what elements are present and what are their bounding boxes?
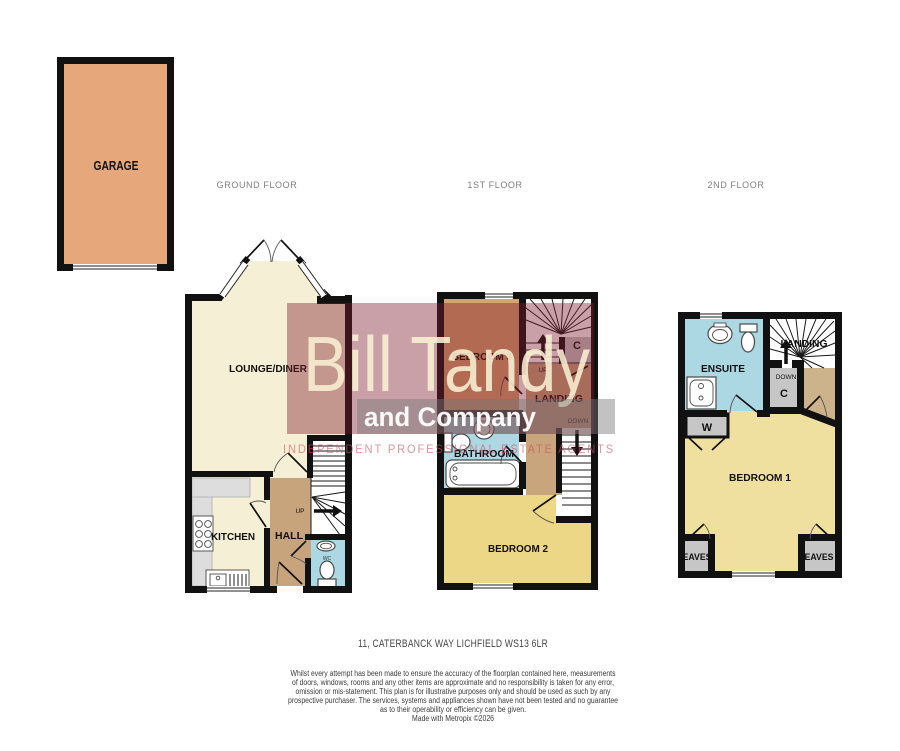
disclaimer-line: as to their operability or efficiency ca…: [380, 705, 526, 714]
agency-watermark: Bill Tandy and Company INDEPENDENT PROFE…: [283, 303, 615, 456]
watermark-tagline: INDEPENDENT PROFESSIONAL ESTATE AGENTS: [283, 442, 615, 456]
floorplan-page: GARAGE GROUND FLOOR 1ST FLOOR 2ND FLOOR: [0, 0, 900, 751]
bedroom2-window: [473, 583, 513, 590]
footer: 11, CATERBANCK WAY LICHFIELD WS13 6LR Wh…: [288, 638, 618, 723]
front-door-opening: [277, 586, 303, 593]
wardrobe-label: W: [702, 422, 713, 434]
first-top-window: [485, 292, 513, 299]
bedroom2-label: BEDROOM 2: [488, 543, 548, 555]
garage-wall-right: [167, 57, 174, 271]
kitchen-label: KITCHEN: [211, 531, 255, 543]
second-landing-label: LANDING: [781, 338, 828, 350]
eaves-right-label: EAVES: [805, 552, 834, 563]
eaves-left-label: EAVES: [683, 552, 712, 563]
garage-wall-bottom-left: [57, 264, 73, 271]
second-cupboard-label: C: [780, 388, 788, 400]
wc-label: WC: [323, 556, 332, 562]
floorplan-canvas: GARAGE GROUND FLOOR 1ST FLOOR 2ND FLOOR: [0, 0, 900, 751]
disclaimer-line: of doors, windows, rooms and any other i…: [292, 678, 614, 687]
wc-basin-icon: [317, 541, 335, 551]
garage-plan: GARAGE: [57, 57, 174, 271]
first-floor-title: 1ST FLOOR: [467, 180, 522, 190]
bathtub-icon: [446, 460, 520, 488]
garage-wall-left: [57, 57, 64, 271]
garage-wall-top: [57, 57, 174, 64]
garage-wall-bottom-right: [157, 264, 174, 271]
second-top-window: [700, 312, 722, 319]
watermark-company: and Company: [364, 402, 536, 432]
bay-french-doors: [246, 240, 299, 262]
garage-door: [73, 264, 157, 271]
bedroom1-window: [732, 571, 775, 578]
disclaimer-line: prospective purchaser. The services, sys…: [288, 696, 618, 705]
property-address: 11, CATERBANCK WAY LICHFIELD WS13 6LR: [358, 638, 548, 650]
kitchen-window: [207, 586, 250, 593]
ground-floor-title: GROUND FLOOR: [217, 180, 298, 190]
ensuite-label: ENSUITE: [701, 363, 745, 375]
wc-toilet-icon: [318, 561, 336, 587]
hall-label: HALL: [275, 530, 304, 542]
watermark-agency-name: Bill Tandy: [303, 320, 590, 408]
second-floor-title: 2ND FLOOR: [708, 180, 765, 190]
made-with-credit: Made with Metropix ©2026: [412, 714, 494, 723]
garage-label: GARAGE: [94, 158, 139, 173]
bedroom1-label: BEDROOM 1: [729, 472, 791, 484]
disclaimer-line: Whilst every attempt has been made to en…: [291, 669, 616, 678]
second-down-label: DOWN: [776, 374, 797, 381]
hob-icon: [193, 516, 213, 551]
shower-icon: [687, 377, 716, 409]
disclaimer-line: omission or mis-statement. This plan is …: [296, 687, 611, 696]
second-floor-plan: ENSUITE LANDING BEDROOM 1 DOWN C W EAVES…: [678, 312, 842, 578]
ground-up-label: UP: [295, 508, 304, 515]
